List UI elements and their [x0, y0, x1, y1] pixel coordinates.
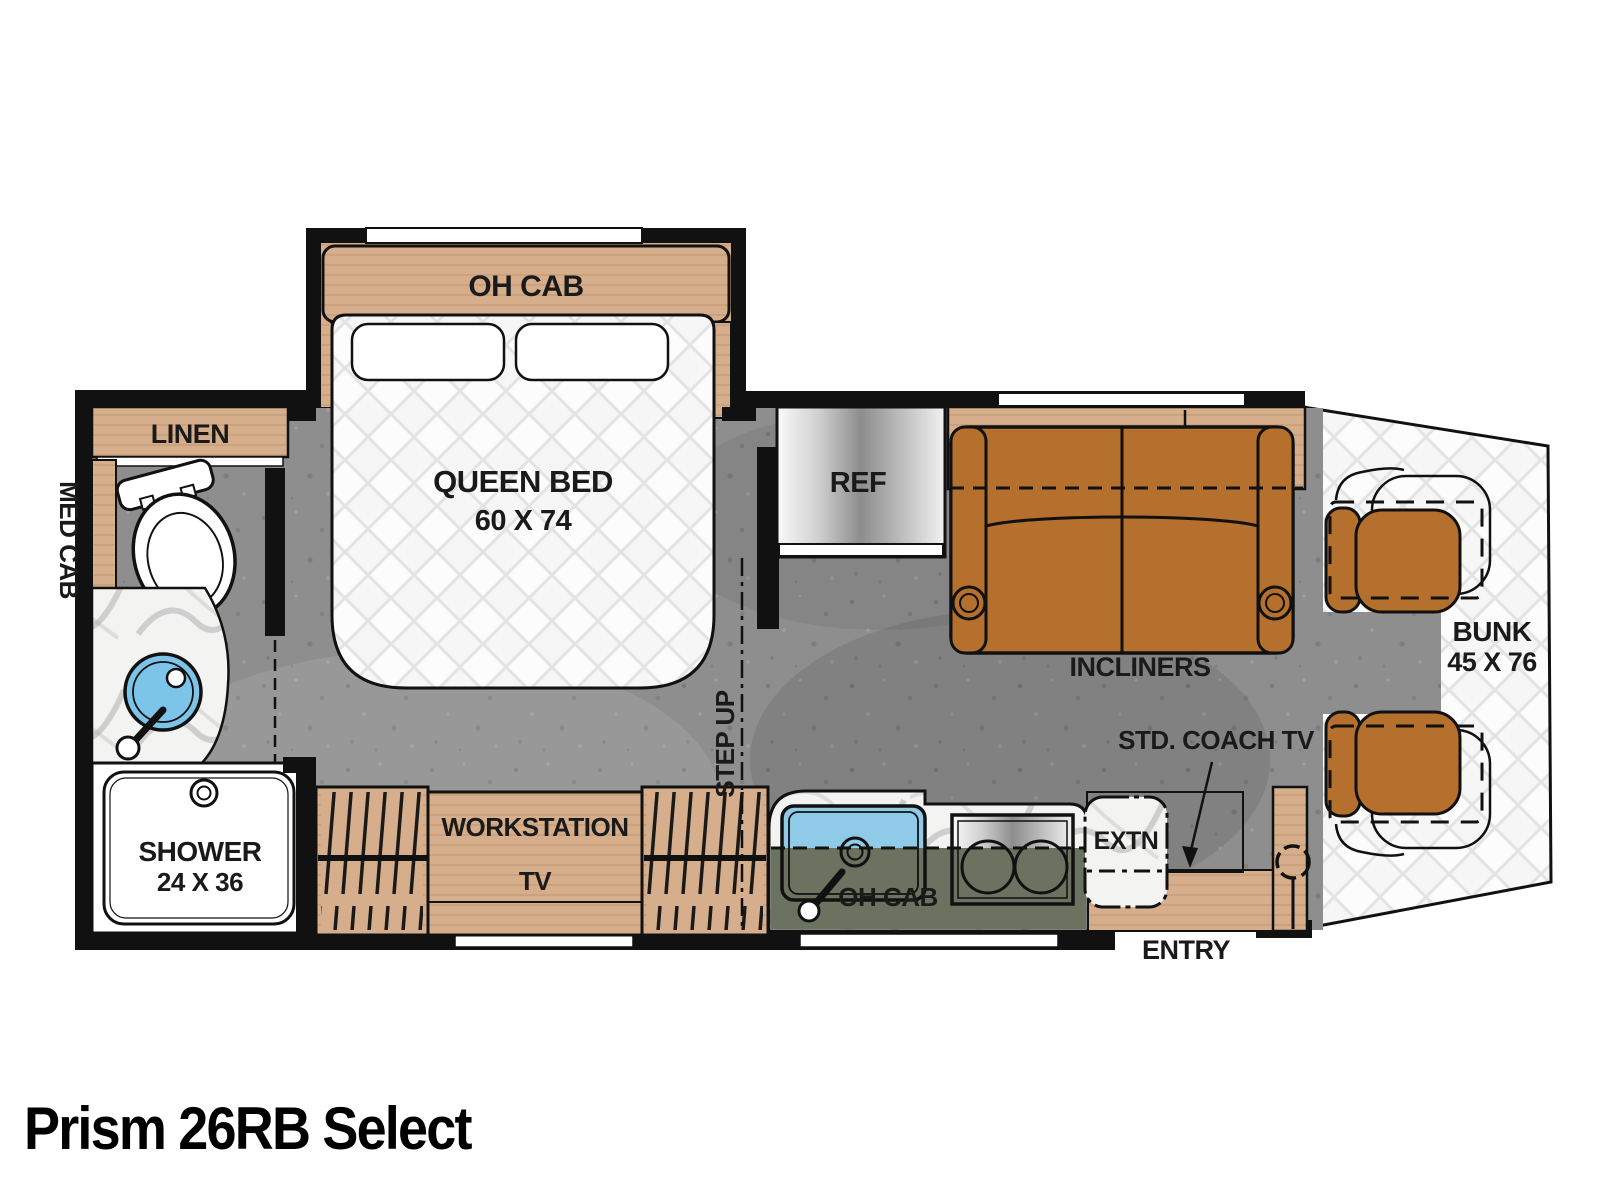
curbside-window [998, 393, 1245, 406]
pillow-right [516, 324, 668, 380]
extn-label: EXTN [1094, 827, 1159, 855]
workstation-tv-label: TV [519, 866, 552, 896]
med-cab-label: MED CAB [54, 481, 84, 599]
top-wall-left [75, 390, 306, 407]
bunk-size-label: 45 X 76 [1447, 647, 1537, 677]
rv-floorplan-page: QUEEN BED 60 X 74 OH CAB LINEN MED CAB [0, 0, 1600, 1200]
bathroom-sink [125, 654, 201, 730]
incliner-sofa [951, 427, 1293, 653]
ref-label: REF [830, 467, 887, 499]
bathroom-faucet-base [117, 737, 139, 759]
pillow-left [352, 324, 504, 380]
std-coach-tv-label: STD. COACH TV [1118, 725, 1315, 755]
kitchen: OH CAB [769, 791, 1088, 931]
workstation-label: WORKSTATION [441, 812, 628, 842]
bunk-label: BUNK [1453, 616, 1532, 647]
shower-label: SHOWER [139, 836, 262, 867]
bathroom-pocket-door [265, 468, 285, 636]
bedroom-ohcab-label: OH CAB [468, 270, 583, 303]
stove [952, 815, 1073, 904]
kitchen-window [800, 934, 1058, 947]
shower-wall [296, 757, 316, 933]
shower-size-label: 24 X 36 [157, 867, 243, 897]
bathroom-sink-drain [167, 669, 185, 687]
entry-label: ENTRY [1142, 935, 1230, 965]
shower-wall-notch [283, 757, 316, 773]
rear-wall [75, 390, 92, 950]
step-up-label: STEP UP [710, 690, 740, 797]
living-area: OH CAB SHELF INCLINERS [948, 407, 1305, 682]
queen-bed-label: QUEEN BED [433, 464, 613, 499]
incliners-label: INCLINERS [1069, 652, 1210, 682]
slide-rail-right [722, 407, 756, 421]
slide-rail-left [288, 407, 316, 421]
kitchen-ohcab-label: OH CAB [838, 882, 938, 912]
ref-door-edge [779, 544, 943, 556]
queen-bed-size-label: 60 X 74 [475, 505, 572, 537]
linen-label: LINEN [151, 419, 230, 449]
refrigerator: REF [777, 407, 945, 557]
bedroom-window [366, 228, 642, 243]
queen-bed: QUEEN BED 60 X 74 [332, 315, 714, 688]
cab-walkway-floor [1303, 612, 1441, 714]
floorplan-title: Prism 26RB Select [24, 1094, 471, 1163]
wardrobe-workstation: WORKSTATION TV [316, 787, 768, 935]
floorplan-drawing: QUEEN BED 60 X 74 OH CAB LINEN MED CAB [0, 0, 1600, 1200]
kitchen-faucet-base [799, 901, 819, 921]
